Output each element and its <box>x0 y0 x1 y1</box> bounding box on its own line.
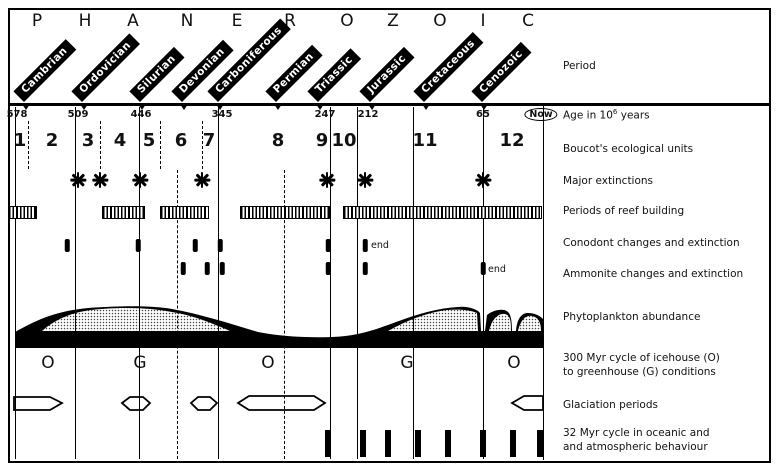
row-label-age: Age in 106 years <box>563 108 650 122</box>
extinction-star-icon <box>92 172 108 188</box>
eon-letter: C <box>522 11 534 31</box>
eon-letter: N <box>181 11 194 31</box>
period-boundary-line <box>483 107 484 459</box>
cycle-bar <box>480 430 486 457</box>
unit-boundary-line <box>160 121 161 169</box>
conodont-mark <box>363 239 368 252</box>
eon-letter: I <box>480 11 485 31</box>
climate-letter-G: G <box>133 353 146 373</box>
ecological-unit-number: 1 <box>14 130 27 151</box>
ecological-unit-number: 12 <box>499 130 524 151</box>
climate-letter-O: O <box>507 353 520 373</box>
ecological-unit-number: 3 <box>82 130 95 151</box>
row-label-period: Period <box>563 60 596 72</box>
row-label-major-extinctions: Major extinctions <box>563 175 653 187</box>
extinction-star-icon <box>319 172 335 188</box>
unit-boundary-line <box>100 121 101 169</box>
age-tick-label: 446 <box>131 109 152 120</box>
eon-letter: E <box>232 11 243 31</box>
conodont-end-label: end <box>371 240 389 251</box>
extinction-star-icon <box>70 172 86 188</box>
eon-letter: A <box>127 11 139 31</box>
eon-letter: P <box>32 11 42 31</box>
reef-building-bar <box>160 206 209 219</box>
age-tick-label: 578 <box>7 109 28 120</box>
conodont-mark <box>326 239 331 252</box>
row-label-32myr-line1: 32 Myr cycle in oceanic and <box>563 427 710 439</box>
reef-building-bar <box>240 206 330 219</box>
cycle-bar <box>445 430 451 457</box>
extinction-star-icon <box>357 172 373 188</box>
age-tick-label: 247 <box>315 109 336 120</box>
unit-boundary-line <box>28 121 29 169</box>
period-boundary-line <box>413 107 414 459</box>
ammonite-mark <box>326 262 331 275</box>
eon-letter: Z <box>387 11 399 31</box>
row-label-reef-building: Periods of reef building <box>563 205 684 217</box>
age-tick-label: 65 <box>476 109 490 120</box>
extinction-star-icon <box>194 172 210 188</box>
age-tick-label: 212 <box>358 109 379 120</box>
row-label-phytoplankton: Phytoplankton abundance <box>563 311 700 323</box>
now-label: Now <box>524 108 557 121</box>
age-label-prefix: Age in 10 <box>563 110 613 122</box>
ammonite-mark <box>481 262 486 275</box>
chart-label-separator <box>543 104 544 460</box>
cycle-bar <box>385 430 391 457</box>
ecological-unit-number: 9 <box>316 130 329 151</box>
reef-building-bar <box>102 206 145 219</box>
climate-letter-O: O <box>41 353 54 373</box>
cycle-bar <box>510 430 516 457</box>
period-boundary-line <box>330 107 331 459</box>
period-boundary-line <box>357 107 358 459</box>
climate-letter-G: G <box>400 353 413 373</box>
ecological-unit-number: 11 <box>412 130 437 151</box>
age-tick-label: 509 <box>68 109 89 120</box>
period-boundary-line <box>218 107 219 459</box>
conodont-mark <box>193 239 198 252</box>
row-label-glaciation: Glaciation periods <box>563 399 658 411</box>
reef-building-bar <box>8 206 37 219</box>
extinction-star-icon <box>132 172 148 188</box>
row-label-icehouse-line2: to greenhouse (G) conditions <box>563 366 716 378</box>
ecological-unit-number: 2 <box>46 130 59 151</box>
row-label-ecological-units: Boucot's ecological units <box>563 143 693 155</box>
conodont-mark <box>218 239 223 252</box>
cycle-bar <box>325 430 331 457</box>
age-axis-line <box>8 103 770 106</box>
climate-letter-O: O <box>261 353 274 373</box>
period-boundary-line <box>75 107 76 459</box>
ecological-unit-number: 7 <box>203 130 216 151</box>
cycle-bar <box>360 430 366 457</box>
ammonite-mark <box>220 262 225 275</box>
ecological-unit-number: 8 <box>272 130 285 151</box>
ammonite-mark <box>363 262 368 275</box>
extinction-star-icon <box>475 172 491 188</box>
age-tick-label: 345 <box>212 109 233 120</box>
period-boundary-line <box>139 107 140 459</box>
phanerozoic-timeline-figure: PHANEROZOICCambrianOrdovicianSilurianDev… <box>0 0 781 469</box>
row-label-32myr-line2: and atmospheric behaviour <box>563 441 708 453</box>
cycle-bar <box>415 430 421 457</box>
ecological-unit-number: 10 <box>331 130 356 151</box>
ecological-unit-number: 4 <box>114 130 127 151</box>
period-boundary-line <box>15 107 16 459</box>
ammonite-mark <box>181 262 186 275</box>
eon-letter: O <box>433 11 446 31</box>
conodont-mark <box>136 239 141 252</box>
row-label-conodont: Conodont changes and extinction <box>563 237 740 249</box>
age-label-suffix: years <box>617 110 649 122</box>
ecological-unit-number: 6 <box>175 130 188 151</box>
ecological-unit-number: 5 <box>143 130 156 151</box>
conodont-mark <box>65 239 70 252</box>
reef-building-bar <box>343 206 542 219</box>
eon-letter: H <box>79 11 92 31</box>
eon-letter: O <box>340 11 353 31</box>
row-label-icehouse-line1: 300 Myr cycle of icehouse (O) <box>563 352 720 364</box>
ammonite-mark <box>205 262 210 275</box>
row-label-ammonite: Ammonite changes and extinction <box>563 268 743 280</box>
ammonite-end-label: end <box>488 264 506 275</box>
